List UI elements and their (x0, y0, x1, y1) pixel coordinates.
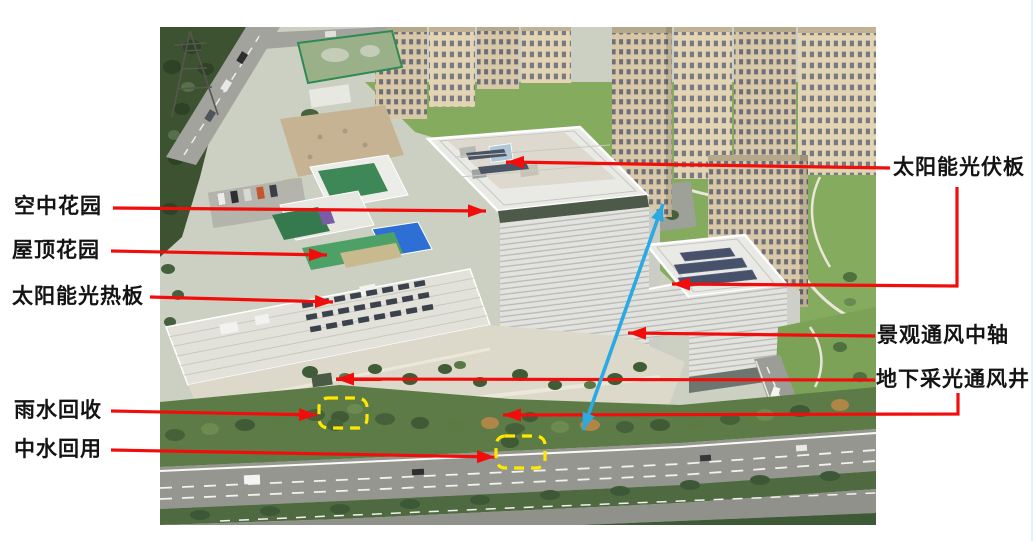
slide: 空中花园 屋顶花园 太阳能光热板 雨水回收 中水回用 太阳能光伏板 景观通风中轴… (0, 0, 1035, 541)
label-solar-pv: 太阳能光伏板 (893, 155, 1025, 181)
label-vent-axis: 景观通风中轴 (877, 323, 1009, 349)
label-solar-thermal: 太阳能光热板 (12, 284, 144, 310)
white-van (244, 475, 260, 485)
label-roof-garden: 屋顶花园 (12, 238, 100, 264)
label-reclaimed-water: 中水回用 (14, 437, 102, 463)
label-rainwater: 雨水回收 (14, 398, 102, 424)
label-sky-garden: 空中花园 (14, 194, 102, 220)
aerial-photo (160, 27, 876, 525)
label-daylight-shaft: 地下采光通风井 (876, 367, 1030, 393)
slide-edge-line (1031, 0, 1033, 541)
